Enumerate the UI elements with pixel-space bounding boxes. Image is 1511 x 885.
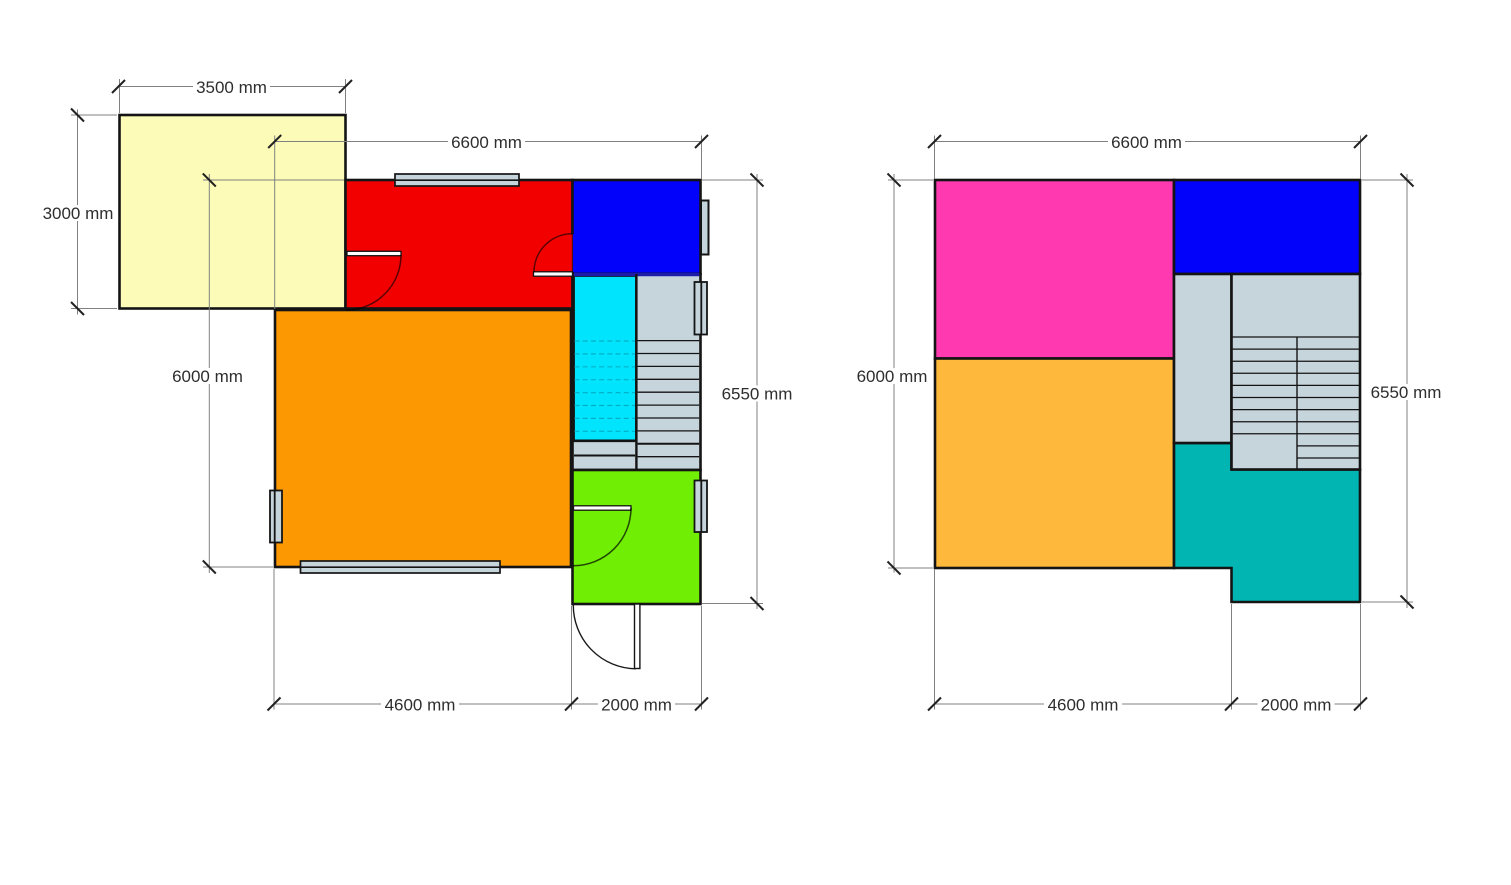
- svg-text:6000 mm: 6000 mm: [172, 367, 243, 386]
- svg-text:2000 mm: 2000 mm: [601, 696, 672, 715]
- svg-text:3000 mm: 3000 mm: [43, 204, 114, 223]
- svg-text:4600 mm: 4600 mm: [1048, 696, 1119, 715]
- svg-text:2000 mm: 2000 mm: [1261, 696, 1332, 715]
- svg-text:6550 mm: 6550 mm: [722, 385, 793, 404]
- svg-text:6550 mm: 6550 mm: [1371, 383, 1442, 402]
- svg-text:6600 mm: 6600 mm: [451, 133, 522, 152]
- svg-text:3500 mm: 3500 mm: [196, 78, 267, 97]
- svg-text:6000 mm: 6000 mm: [857, 367, 928, 386]
- svg-text:4600 mm: 4600 mm: [385, 696, 456, 715]
- svg-text:6600 mm: 6600 mm: [1111, 133, 1182, 152]
